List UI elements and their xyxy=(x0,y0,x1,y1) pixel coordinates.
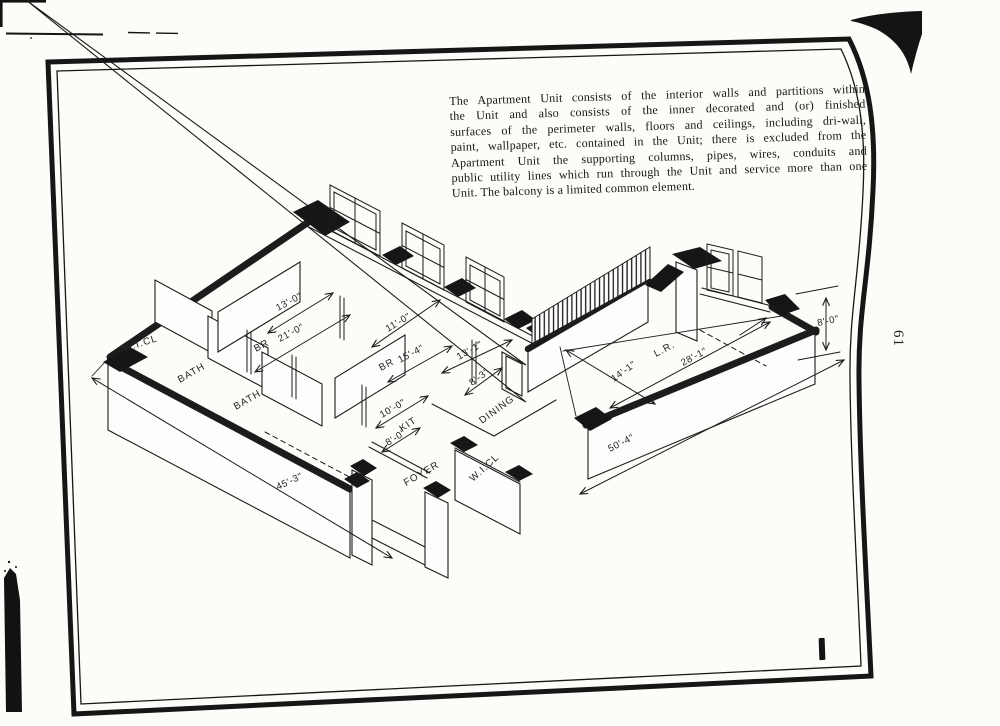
east-pillar-cap xyxy=(765,294,800,316)
window-frames-left-wing xyxy=(330,185,504,322)
window-frames-right-wing xyxy=(707,244,762,303)
label-bath2: BATH xyxy=(232,388,263,412)
dim-wall-height-label: 8'-0" xyxy=(816,314,840,329)
label-lr: L.R. xyxy=(652,339,677,359)
figure-mark xyxy=(819,638,826,660)
label-dining: DINING xyxy=(477,393,517,426)
page-number: 61 xyxy=(882,330,906,354)
dim-dining-len: 13'-1" xyxy=(455,339,485,363)
artifact-left-wedge xyxy=(4,568,22,712)
dim-br2-wid: 11'-0" xyxy=(384,311,413,335)
dim-lr-wid: 14'-1" xyxy=(609,359,638,384)
artifact-left-tick xyxy=(0,0,3,27)
scanned-page: W.I.CL BATH BATH BR 21'-0" 13'-0" 11'-0"… xyxy=(0,0,1000,726)
dim-dining-wid: 8'-3" xyxy=(467,367,491,389)
artifact-top-tick xyxy=(0,0,46,3)
entry-block xyxy=(344,459,451,578)
dim-lr-len: 28'-1" xyxy=(679,346,709,369)
wall-pillar-cap xyxy=(444,278,476,297)
wicl2-block xyxy=(450,436,533,534)
label-bath1: BATH xyxy=(176,361,207,385)
description-paragraph: The Apartment Unit consists of the inter… xyxy=(449,82,868,202)
